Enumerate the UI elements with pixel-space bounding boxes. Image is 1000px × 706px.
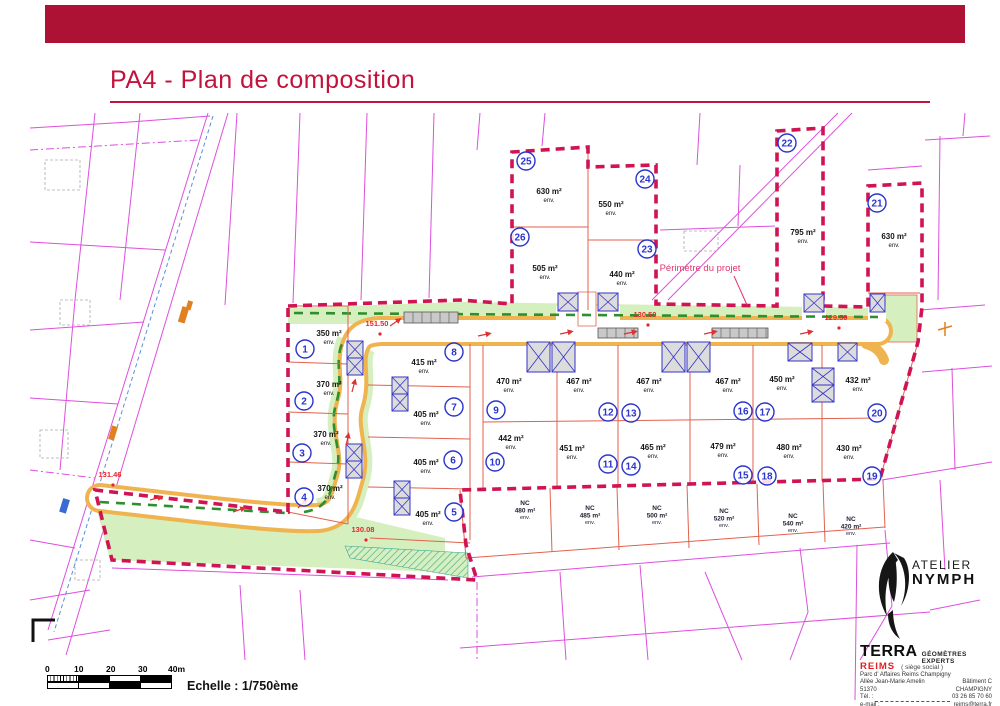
site-plan-map: Périmètre du projet 1350 m²env.2370 m²en… bbox=[0, 0, 1000, 706]
lot-area: 432 m² bbox=[845, 376, 871, 385]
lot-number: 2 bbox=[301, 397, 307, 408]
lot-area: 505 m² bbox=[532, 264, 558, 273]
lot-area-approx: env. bbox=[419, 369, 430, 375]
svg-text:env.: env. bbox=[520, 515, 530, 521]
lot-area: 405 m² bbox=[413, 410, 439, 419]
svg-text:130.08: 130.08 bbox=[352, 525, 375, 534]
lot-marker: 24550 m²env. bbox=[598, 170, 654, 217]
scalebar-top-row bbox=[48, 675, 172, 682]
lot-area: 405 m² bbox=[413, 458, 439, 467]
lot-number: 11 bbox=[603, 460, 614, 471]
scalebar-tick: 30 bbox=[138, 664, 147, 674]
lot-area: 467 m² bbox=[715, 377, 741, 386]
address-building: Bâtiment C bbox=[962, 679, 992, 687]
address-city: CHAMPIGNY bbox=[956, 687, 992, 695]
lot-area-approx: env. bbox=[504, 388, 515, 394]
lot-number: 18 bbox=[761, 472, 773, 483]
lot-number: 13 bbox=[625, 409, 637, 420]
lot-area-approx: env. bbox=[644, 388, 655, 394]
lot-area: 470 m² bbox=[496, 377, 522, 386]
address-block: REIMS ( siège social ) Parc d' Affaires … bbox=[860, 663, 992, 706]
building-footprint bbox=[346, 444, 362, 461]
lot-area: 405 m² bbox=[415, 510, 441, 519]
parking-strip bbox=[712, 328, 768, 338]
building-footprint bbox=[598, 293, 618, 311]
lot-number: 1 bbox=[302, 345, 308, 356]
lot-number: 14 bbox=[625, 462, 637, 473]
lot-area-approx: env. bbox=[784, 454, 795, 460]
svg-text:NC: NC bbox=[719, 508, 729, 515]
lot-marker: 17450 m²env. bbox=[756, 375, 795, 421]
phone-value: 03 26 85 70 60 bbox=[952, 694, 992, 702]
lot-marker: 15479 m²env. bbox=[710, 442, 752, 484]
lot-area: 415 m² bbox=[411, 358, 437, 367]
lot-number: 25 bbox=[520, 157, 532, 168]
lot-area: 450 m² bbox=[769, 375, 795, 384]
lot-number: 4 bbox=[301, 493, 307, 504]
lot-area: 630 m² bbox=[536, 187, 562, 196]
nc-lot-label: NC500 m²env. bbox=[647, 505, 668, 526]
lot-marker: 22795 m²env. bbox=[778, 134, 816, 245]
nc-lot-label: NC520 m²env. bbox=[714, 508, 735, 529]
lot-area: 550 m² bbox=[598, 200, 624, 209]
svg-text:env.: env. bbox=[719, 523, 729, 529]
scale-label: Echelle : 1/750ème bbox=[187, 679, 298, 693]
lot-area-approx: env. bbox=[606, 211, 617, 217]
lot-number: 19 bbox=[866, 472, 878, 483]
building-footprint bbox=[838, 343, 857, 361]
building-footprint bbox=[347, 341, 363, 358]
lot-marker: 18480 m²env. bbox=[758, 443, 802, 485]
lot-area-approx: env. bbox=[324, 340, 335, 346]
lot-marker: 5405 m²env. bbox=[415, 503, 463, 527]
lot-area: 795 m² bbox=[790, 228, 816, 237]
cadastral-lines bbox=[30, 113, 992, 700]
svg-text:env.: env. bbox=[788, 528, 798, 534]
frame-corner bbox=[33, 620, 55, 642]
lot-marker: 26505 m²env. bbox=[511, 228, 558, 281]
building-footprint bbox=[788, 343, 812, 361]
email-label: e-mail : bbox=[860, 702, 880, 706]
svg-text:131.46: 131.46 bbox=[99, 470, 122, 479]
lot-number: 12 bbox=[602, 408, 614, 419]
svg-text:NC: NC bbox=[585, 505, 595, 512]
lot-area-approx: env. bbox=[723, 388, 734, 394]
phone-label: Tél. : bbox=[860, 694, 873, 702]
lot-area-approx: env. bbox=[421, 421, 432, 427]
pole-symbol bbox=[938, 322, 952, 336]
nc-lot-label: NC485 m²env. bbox=[580, 505, 601, 526]
lot-marker: 7405 m²env. bbox=[413, 398, 463, 427]
lot-area: 479 m² bbox=[710, 442, 736, 451]
lot-marker: 10442 m²env. bbox=[486, 434, 524, 471]
lot-marker: 25630 m²env. bbox=[517, 152, 562, 204]
lot-area-approx: env. bbox=[798, 239, 809, 245]
lot-area-approx: env. bbox=[544, 198, 555, 204]
lot-number: 8 bbox=[451, 348, 457, 359]
lot-area: 370 m² bbox=[313, 430, 339, 439]
svg-text:NC: NC bbox=[520, 500, 530, 507]
atelier-label: ATELIER bbox=[912, 558, 972, 572]
lot-area-approx: env. bbox=[718, 453, 729, 459]
scalebar-tick: 40m bbox=[168, 664, 185, 674]
svg-text:500 m²: 500 m² bbox=[647, 513, 668, 520]
lot-number: 7 bbox=[451, 403, 457, 414]
svg-text:485 m²: 485 m² bbox=[580, 513, 601, 520]
building-footprint bbox=[394, 498, 410, 515]
parking-strip bbox=[404, 312, 458, 323]
lot-area-approx: env. bbox=[540, 275, 551, 281]
postal-code: 51370 bbox=[860, 687, 877, 695]
lot-number: 22 bbox=[781, 139, 793, 150]
lot-area: 350 m² bbox=[316, 329, 342, 338]
svg-text:env.: env. bbox=[846, 531, 856, 537]
building-footprint bbox=[392, 394, 408, 411]
lot-number: 6 bbox=[450, 456, 456, 467]
lot-marker: 6405 m²env. bbox=[413, 451, 462, 475]
building-footprint bbox=[394, 481, 410, 498]
lot-area: 467 m² bbox=[636, 377, 662, 386]
lot-marker: 13467 m²env. bbox=[622, 377, 662, 422]
perimeter-label-group: Périmètre du projet bbox=[660, 263, 747, 305]
lot-number: 5 bbox=[451, 508, 457, 519]
lot-area-approx: env. bbox=[321, 441, 332, 447]
svg-text:129.50: 129.50 bbox=[825, 313, 848, 322]
nc-lot-label: NC480 m²env. bbox=[515, 500, 536, 521]
lot-marker: 20432 m²env. bbox=[845, 376, 886, 422]
lot-area: 430 m² bbox=[836, 444, 862, 453]
building-footprint bbox=[392, 377, 408, 394]
lot-area-approx: env. bbox=[889, 243, 900, 249]
building-footprint bbox=[687, 342, 710, 372]
building-footprint bbox=[347, 358, 363, 375]
building-footprint bbox=[804, 294, 824, 312]
building-footprint bbox=[812, 368, 834, 385]
building-footprint bbox=[870, 294, 885, 312]
svg-text:env.: env. bbox=[585, 520, 595, 526]
lot-area-approx: env. bbox=[423, 521, 434, 527]
building-footprint bbox=[558, 293, 578, 311]
lot-area: 370 m² bbox=[316, 380, 342, 389]
svg-text:NC: NC bbox=[788, 513, 798, 520]
office-city: REIMS bbox=[860, 663, 895, 671]
lot-marker: 23440 m²env. bbox=[609, 240, 656, 287]
building-footprint bbox=[552, 342, 575, 372]
lot-area: 467 m² bbox=[566, 377, 592, 386]
lot-area-approx: env. bbox=[853, 387, 864, 393]
lot-area-approx: env. bbox=[506, 445, 517, 451]
lot-number: 24 bbox=[639, 175, 651, 186]
address-line-1: Parc d' Affaires Reims Champigny bbox=[860, 672, 992, 680]
lot-area-approx: env. bbox=[617, 281, 628, 287]
lot-marker: 21630 m²env. bbox=[868, 194, 907, 249]
lot-number: 9 bbox=[493, 406, 499, 417]
svg-text:env.: env. bbox=[652, 520, 662, 526]
nc-lot-label: NC420 m²env. bbox=[841, 516, 862, 537]
svg-text:520 m²: 520 m² bbox=[714, 516, 735, 523]
siege-social: ( siège social ) bbox=[901, 664, 943, 672]
svg-text:NC: NC bbox=[652, 505, 662, 512]
scalebar-tick: 0 bbox=[45, 664, 50, 674]
lot-area: 370 m² bbox=[317, 484, 343, 493]
lot-number: 23 bbox=[641, 245, 653, 256]
lot-area: 465 m² bbox=[640, 443, 666, 452]
lot-number: 16 bbox=[737, 407, 749, 418]
lot-number: 20 bbox=[871, 409, 883, 420]
lot-marker: 11451 m²env. bbox=[559, 444, 617, 473]
svg-text:NC: NC bbox=[846, 516, 856, 523]
lot-marker: 8415 m²env. bbox=[411, 343, 463, 375]
scalebar-bottom-row bbox=[48, 682, 172, 689]
lot-area: 630 m² bbox=[881, 232, 907, 241]
lot-area-approx: env. bbox=[648, 454, 659, 460]
scalebar-tick: 10 bbox=[74, 664, 83, 674]
svg-text:151.50: 151.50 bbox=[366, 319, 389, 328]
nymph-label: NYMPH bbox=[912, 571, 976, 588]
lot-area-approx: env. bbox=[324, 391, 335, 397]
building-footprint bbox=[662, 342, 685, 372]
lot-area-approx: env. bbox=[325, 495, 336, 501]
lot-area: 440 m² bbox=[609, 270, 635, 279]
plan-page: PA4 - Plan de composition bbox=[0, 0, 1000, 706]
atelier-nymph-logo-icon bbox=[879, 552, 909, 639]
lot-area: 451 m² bbox=[559, 444, 585, 453]
lot-number: 21 bbox=[871, 199, 883, 210]
lot-number: 17 bbox=[759, 408, 771, 419]
lot-marker: 9470 m²env. bbox=[487, 377, 522, 419]
perimeter-label: Périmètre du projet bbox=[660, 263, 741, 274]
email-value: reims@terra.fr bbox=[954, 702, 992, 706]
lot-number: 26 bbox=[514, 233, 526, 244]
nc-lot-label: NC540 m²env. bbox=[783, 513, 804, 534]
lot-marker: 16467 m²env. bbox=[715, 377, 752, 420]
building-footprint bbox=[346, 461, 362, 478]
scalebar-tick: 20 bbox=[106, 664, 115, 674]
address-line-2: Allée Jean-Marie Amelin bbox=[860, 679, 925, 687]
svg-text:480 m²: 480 m² bbox=[515, 508, 536, 515]
lot-marker: 12467 m²env. bbox=[566, 377, 617, 421]
lot-area-approx: env. bbox=[777, 386, 788, 392]
svg-text:420 m²: 420 m² bbox=[841, 524, 862, 531]
north-access-stub bbox=[578, 292, 596, 326]
lot-number: 15 bbox=[737, 471, 749, 482]
lot-area: 480 m² bbox=[776, 443, 802, 452]
lot-area-approx: env. bbox=[844, 455, 855, 461]
lot-area-approx: env. bbox=[567, 455, 578, 461]
svg-text:130.50: 130.50 bbox=[634, 310, 657, 319]
lot-number: 10 bbox=[489, 458, 501, 469]
lot-marker: 14465 m²env. bbox=[622, 443, 666, 475]
lot-number: 3 bbox=[299, 449, 305, 460]
building-footprint bbox=[812, 385, 834, 402]
lot-area-approx: env. bbox=[574, 388, 585, 394]
lot-area-approx: env. bbox=[421, 469, 432, 475]
leader-line bbox=[875, 697, 950, 702]
svg-text:540 m²: 540 m² bbox=[783, 521, 804, 528]
building-footprint bbox=[527, 342, 550, 372]
lot-area: 442 m² bbox=[498, 434, 524, 443]
terra-name: TERRA bbox=[860, 643, 918, 661]
